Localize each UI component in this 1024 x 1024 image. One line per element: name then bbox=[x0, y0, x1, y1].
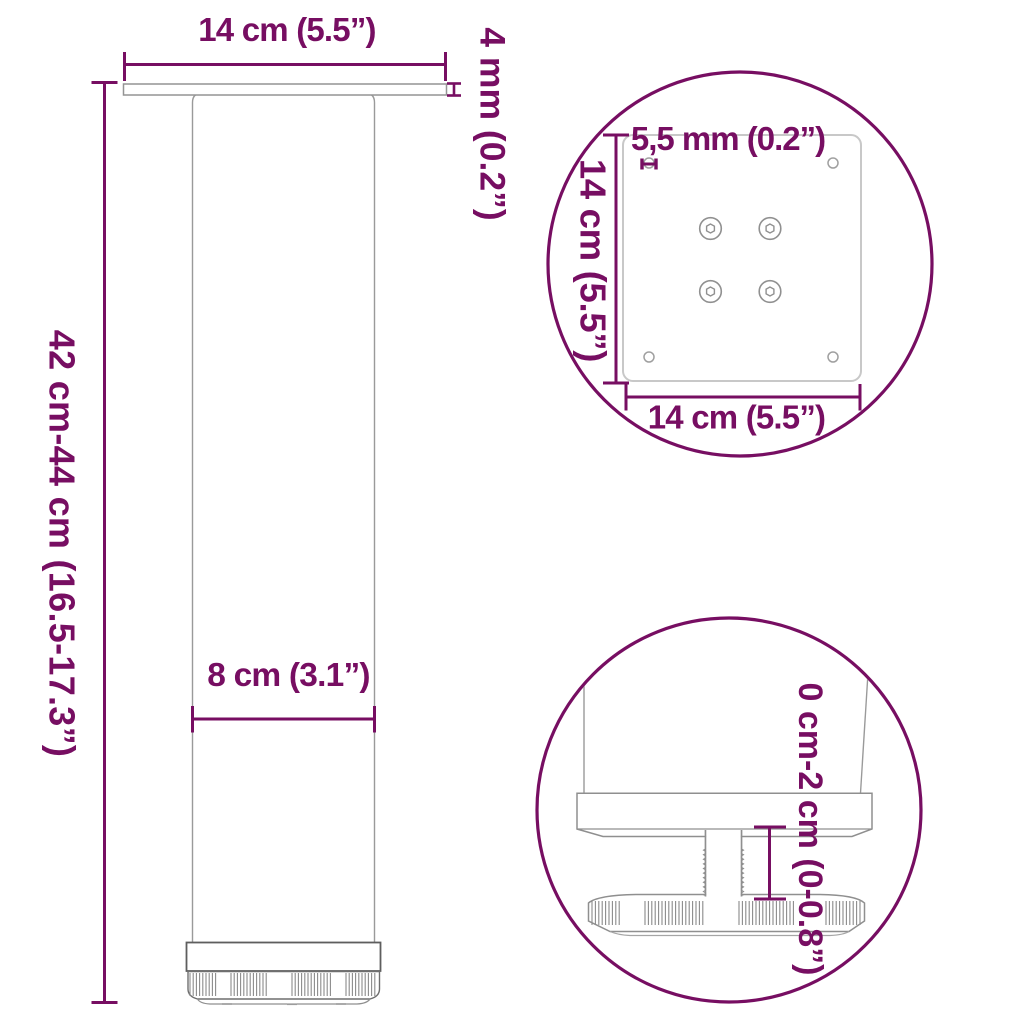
svg-text:0 cm-2 cm (0-0.8”): 0 cm-2 cm (0-0.8”) bbox=[791, 683, 829, 976]
svg-text:42 cm-44 cm (16.5-17.3”): 42 cm-44 cm (16.5-17.3”) bbox=[42, 330, 83, 757]
svg-text:8 cm (3.1”): 8 cm (3.1”) bbox=[207, 657, 370, 694]
svg-text:4 mm (0.2”): 4 mm (0.2”) bbox=[473, 27, 513, 220]
svg-text:14 cm (5.5”): 14 cm (5.5”) bbox=[648, 399, 826, 436]
svg-text:14 cm (5.5”): 14 cm (5.5”) bbox=[573, 159, 614, 362]
svg-text:14 cm (5.5”): 14 cm (5.5”) bbox=[198, 11, 376, 48]
svg-text:5,5 mm (0.2”): 5,5 mm (0.2”) bbox=[631, 120, 825, 157]
